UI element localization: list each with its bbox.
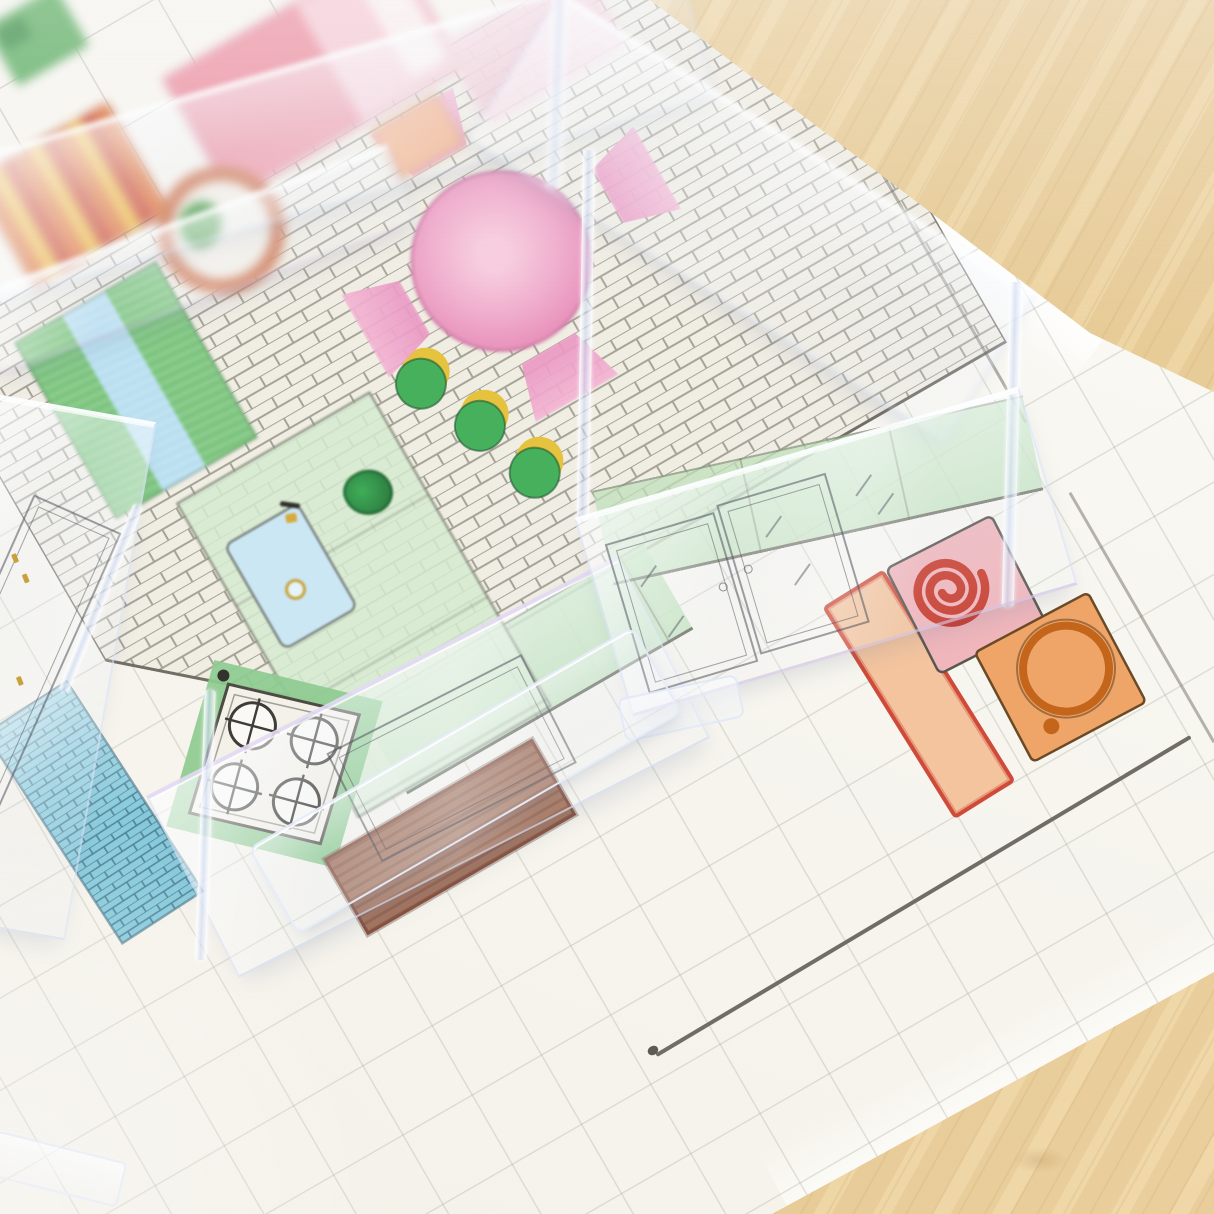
glass-hatch-mark — [855, 474, 872, 496]
glass-hatch-mark — [877, 493, 894, 515]
green-table-top — [0, 15, 33, 51]
bar-stool — [497, 428, 577, 507]
lettuce — [336, 461, 401, 525]
faucet-base — [285, 513, 297, 524]
faucet-icon — [280, 501, 301, 509]
photo-scene — [0, 0, 1214, 1214]
bar-stool — [442, 381, 522, 460]
